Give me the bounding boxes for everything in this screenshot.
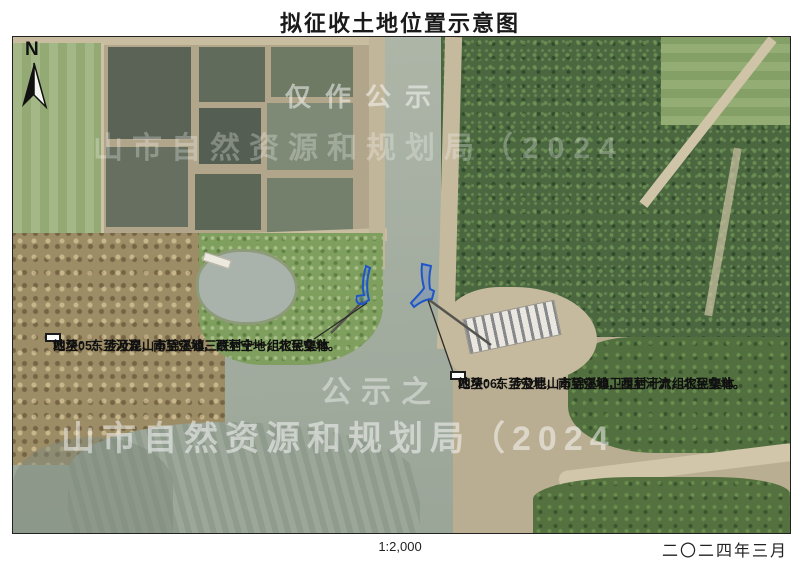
north-label: N (25, 39, 39, 61)
pier-line (428, 299, 491, 345)
leader-line-parcel-06 (428, 300, 454, 375)
north-arrow-icon (19, 61, 49, 111)
north-arrow: N (17, 39, 53, 111)
annotation-box-parcel-06: 地块06：涉及昆山市锦溪镇卫星村十六组农民集体 四至：东至空地，南至空地，西至河… (450, 371, 466, 380)
annotation-box-parcel-05: 地块05：涉及昆山市锦溪镇三联村十一组农民集体 四至：东至河流，南至空地，西至空… (45, 333, 61, 342)
map-date: 二〇二四年三月 (662, 537, 788, 561)
parcel-06-boundaries: 四至：东至空地，南至空地，西至河流，北至空地。 (458, 375, 746, 394)
leader-line-parcel-05 (314, 303, 367, 339)
map-canvas: 仅作公示 山市自然资源和规划局（2024 公示之 山市自然资源和规划局（2024… (12, 36, 791, 534)
notice-page: 拟征收土地位置示意图 仅作公示 山市自然资源和规划局 (0, 0, 800, 565)
parcel-05-boundaries: 四至：东至河流，南至空地，西至空地，北至空地。 (53, 337, 341, 356)
parcel-05-outline (356, 266, 370, 304)
page-title: 拟征收土地位置示意图 (0, 6, 800, 38)
parcel-overlay (13, 37, 790, 533)
